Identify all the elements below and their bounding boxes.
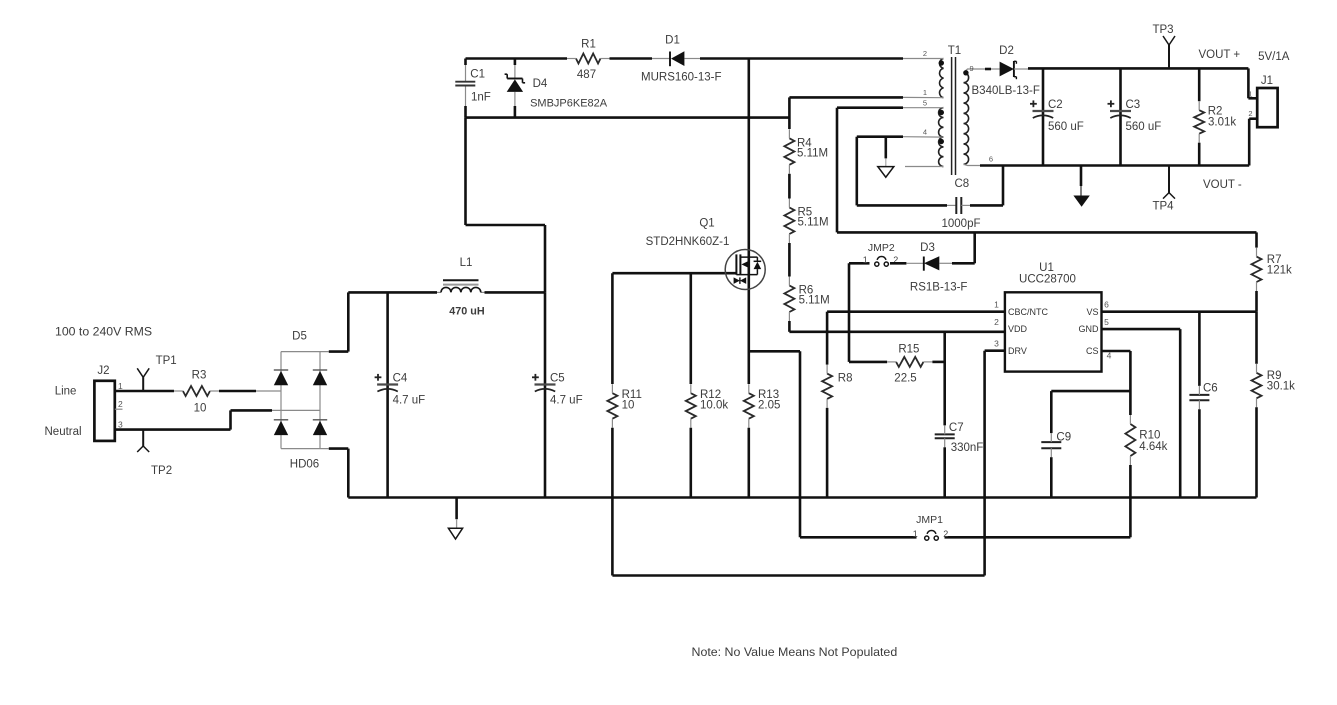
svg-text:MURS160-13-F: MURS160-13-F — [641, 72, 722, 84]
svg-text:1: 1 — [1248, 90, 1252, 99]
svg-text:560 uF: 560 uF — [1048, 121, 1084, 133]
svg-text:T1: T1 — [948, 45, 961, 57]
svg-text:C3: C3 — [1126, 99, 1141, 111]
svg-text:1: 1 — [863, 255, 868, 265]
svg-text:SMBJP6KE82A: SMBJP6KE82A — [530, 98, 608, 110]
svg-text:10: 10 — [194, 403, 207, 415]
svg-text:10.0k: 10.0k — [700, 400, 728, 412]
svg-text:1: 1 — [923, 88, 927, 97]
svg-text:J2: J2 — [97, 365, 109, 377]
svg-text:5: 5 — [1104, 317, 1109, 327]
svg-text:D2: D2 — [999, 45, 1014, 57]
svg-text:6: 6 — [1104, 300, 1109, 310]
svg-text:C5: C5 — [550, 373, 565, 385]
svg-text:C1: C1 — [470, 69, 485, 81]
svg-text:Line: Line — [55, 386, 77, 398]
svg-text:4.7 uF: 4.7 uF — [393, 394, 426, 406]
svg-text:2: 2 — [118, 399, 123, 409]
svg-text:100 to 240V RMS: 100 to 240V RMS — [55, 325, 152, 339]
svg-text:D5: D5 — [292, 331, 307, 343]
svg-text:VOUT +: VOUT + — [1199, 49, 1241, 61]
svg-text:C2: C2 — [1048, 99, 1063, 111]
svg-text:9: 9 — [970, 64, 974, 73]
svg-text:STD2HNK60Z-1: STD2HNK60Z-1 — [646, 236, 730, 248]
svg-text:470 uH: 470 uH — [449, 306, 485, 318]
svg-text:2.05: 2.05 — [758, 400, 780, 412]
svg-text:R15: R15 — [898, 343, 919, 355]
svg-text:R1: R1 — [581, 39, 596, 51]
svg-text:Note: No Value Means Not Popul: Note: No Value Means Not Populated — [692, 645, 898, 659]
svg-text:2: 2 — [1248, 109, 1252, 118]
svg-text:TP1: TP1 — [156, 355, 177, 367]
svg-text:VOUT -: VOUT - — [1203, 179, 1242, 191]
svg-text:L1: L1 — [460, 257, 473, 269]
svg-text:3: 3 — [994, 339, 999, 349]
svg-text:6: 6 — [989, 155, 993, 164]
svg-text:487: 487 — [577, 69, 596, 81]
svg-text:4.7 uF: 4.7 uF — [550, 394, 583, 406]
svg-text:2: 2 — [923, 49, 927, 58]
svg-text:1: 1 — [994, 300, 999, 310]
svg-text:D1: D1 — [665, 35, 680, 47]
svg-text:3.01k: 3.01k — [1208, 116, 1236, 128]
svg-text:4.64k: 4.64k — [1139, 441, 1167, 453]
svg-text:5.11M: 5.11M — [799, 295, 830, 307]
svg-text:D3: D3 — [920, 242, 935, 254]
svg-text:10: 10 — [622, 400, 635, 412]
svg-text:U1: U1 — [1039, 262, 1054, 274]
svg-text:RS1B-13-F: RS1B-13-F — [910, 281, 968, 293]
svg-text:D4: D4 — [533, 78, 548, 90]
svg-text:1: 1 — [913, 529, 918, 539]
svg-text:VS: VS — [1086, 307, 1098, 317]
svg-text:JMP2: JMP2 — [868, 242, 895, 254]
svg-text:121k: 121k — [1267, 264, 1292, 276]
svg-text:TP2: TP2 — [151, 465, 172, 477]
svg-text:C9: C9 — [1056, 432, 1071, 444]
svg-text:30.1k: 30.1k — [1267, 381, 1295, 393]
svg-text:JMP1: JMP1 — [916, 514, 943, 526]
svg-text:R10: R10 — [1139, 430, 1160, 442]
svg-text:4: 4 — [923, 128, 927, 137]
svg-text:C6: C6 — [1203, 383, 1218, 395]
svg-text:Neutral: Neutral — [45, 426, 82, 438]
svg-text:DRV: DRV — [1008, 346, 1027, 356]
svg-text:VDD: VDD — [1008, 324, 1028, 334]
svg-text:5: 5 — [923, 99, 927, 108]
svg-text:TP4: TP4 — [1152, 201, 1174, 213]
svg-text:1000pF: 1000pF — [941, 218, 980, 230]
svg-text:UCC28700: UCC28700 — [1019, 274, 1076, 286]
svg-text:R3: R3 — [192, 370, 207, 382]
svg-text:5V/1A: 5V/1A — [1258, 51, 1290, 63]
svg-text:B340LB-13-F: B340LB-13-F — [972, 85, 1040, 97]
svg-text:C4: C4 — [393, 373, 408, 385]
svg-text:CS: CS — [1086, 346, 1099, 356]
svg-text:22.5: 22.5 — [894, 372, 916, 384]
svg-text:C8: C8 — [954, 178, 969, 190]
svg-text:2: 2 — [943, 529, 948, 539]
svg-text:5.11M: 5.11M — [797, 148, 828, 160]
svg-text:C7: C7 — [949, 422, 964, 434]
svg-text:R8: R8 — [838, 373, 853, 385]
svg-text:HD06: HD06 — [290, 459, 319, 471]
svg-text:1nF: 1nF — [471, 91, 491, 103]
svg-text:5.11M: 5.11M — [798, 216, 829, 228]
svg-text:Q1: Q1 — [699, 218, 714, 230]
svg-text:560 uF: 560 uF — [1126, 121, 1162, 133]
svg-text:GND: GND — [1079, 324, 1100, 334]
svg-text:CBC/NTC: CBC/NTC — [1008, 307, 1048, 317]
svg-text:1: 1 — [118, 381, 123, 391]
svg-text:TP3: TP3 — [1152, 24, 1173, 36]
svg-text:2: 2 — [994, 317, 999, 327]
svg-text:J1: J1 — [1261, 75, 1273, 87]
svg-text:330nF: 330nF — [951, 442, 984, 454]
svg-text:3: 3 — [118, 420, 123, 430]
